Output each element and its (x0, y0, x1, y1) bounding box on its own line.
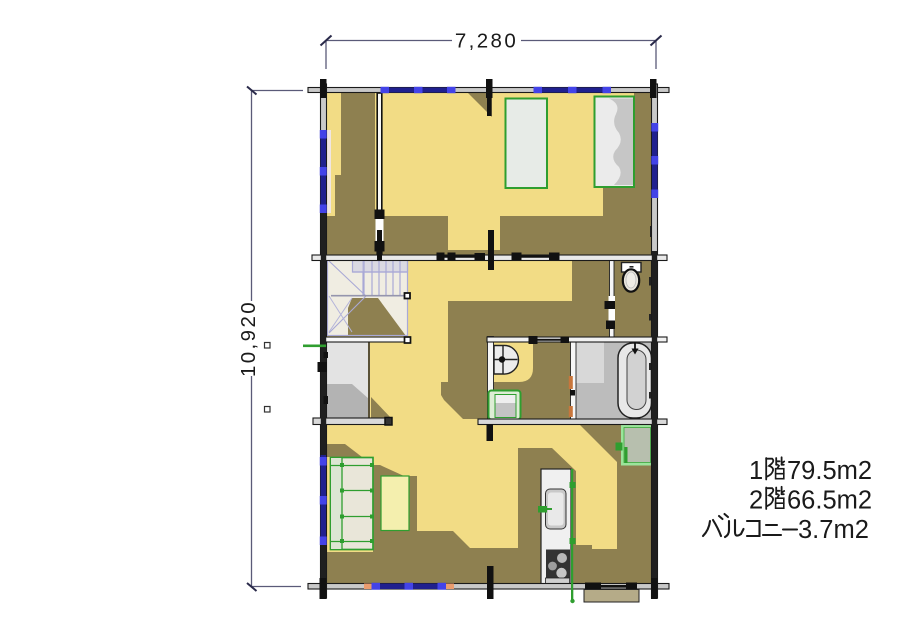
svg-text:79.5m2: 79.5m2 (787, 457, 872, 485)
svg-text:66.5m2: 66.5m2 (787, 487, 872, 515)
svg-text:7,280: 7,280 (455, 30, 518, 53)
svg-text:2: 2 (749, 487, 763, 515)
svg-text:10,920: 10,920 (237, 300, 260, 377)
svg-text:1: 1 (749, 457, 763, 485)
svg-text:3.7m2: 3.7m2 (798, 516, 869, 544)
